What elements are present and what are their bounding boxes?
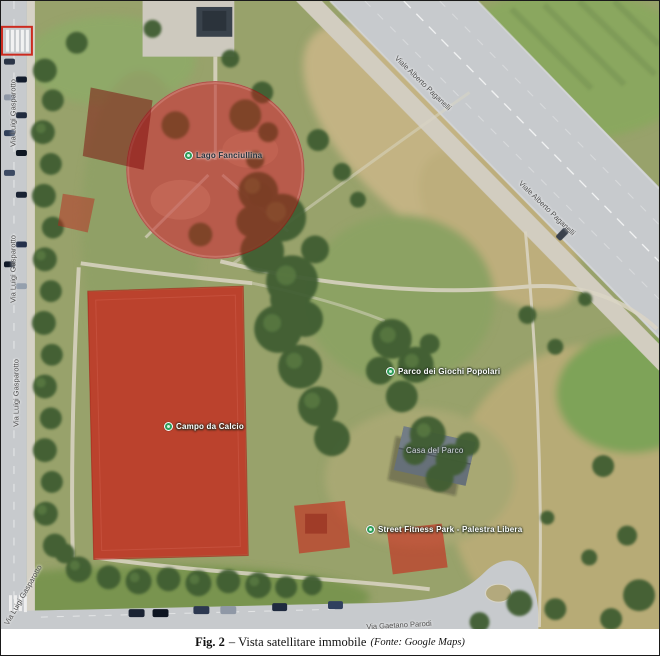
satellite-imagery — [1, 1, 659, 629]
caption-source: (Fonte: Google Maps) — [370, 637, 464, 648]
caption-title: – Vista satellitare immobile — [229, 635, 367, 650]
figure-caption: Fig. 2 – Vista satellitare immobile (Fon… — [1, 629, 659, 655]
figure-frame: Lago Fanciullina Campo da Calcio Parco d… — [0, 0, 660, 656]
satellite-map: Lago Fanciullina Campo da Calcio Parco d… — [1, 1, 659, 629]
highlight-quad-1-inner — [305, 514, 327, 534]
highlight-field — [88, 286, 249, 559]
crosswalk-top — [2, 27, 32, 55]
highlight-quad-2 — [387, 524, 448, 575]
caption-figure-number: Fig. 2 — [195, 635, 225, 650]
highlight-roof — [83, 87, 153, 169]
highlight-playground-circle — [127, 81, 304, 258]
